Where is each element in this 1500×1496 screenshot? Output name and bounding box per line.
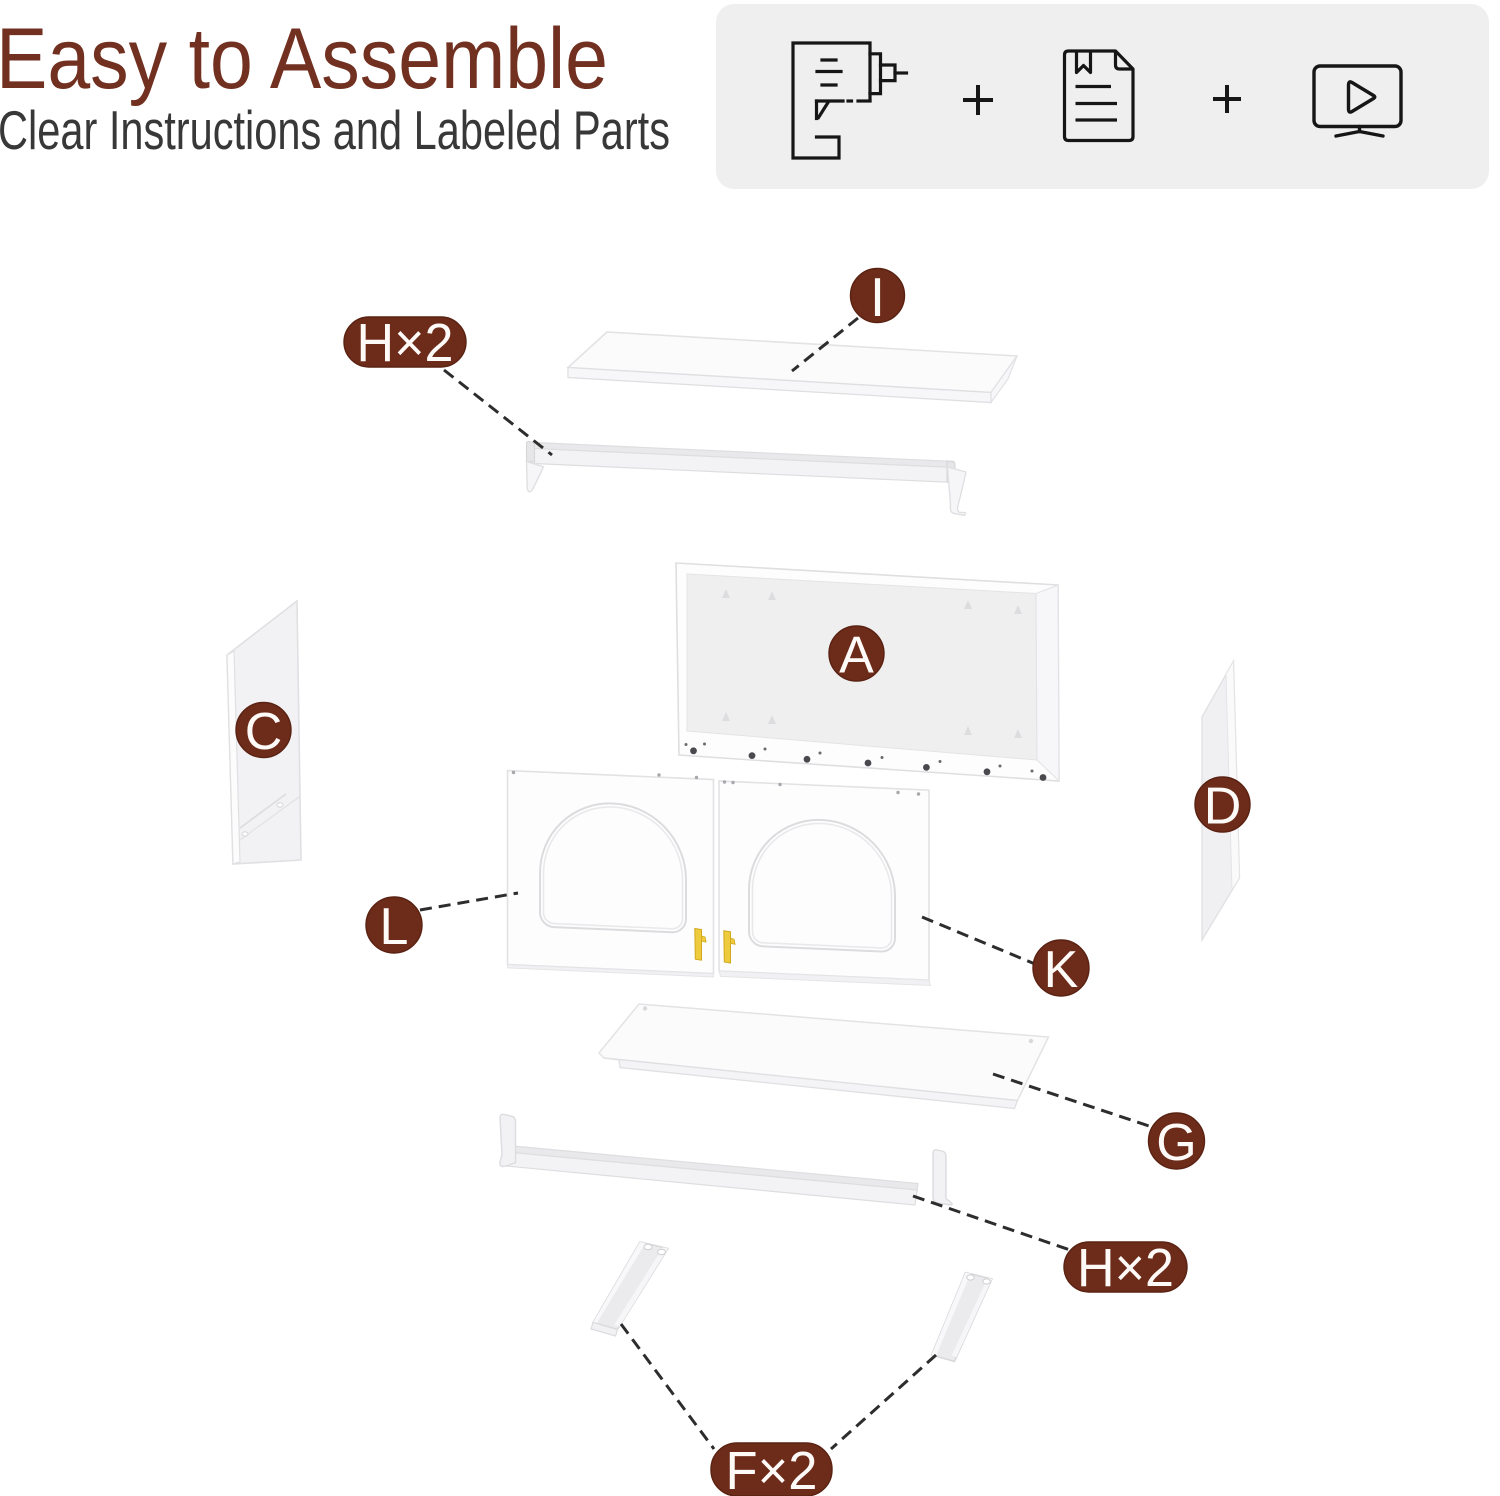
svg-text:K: K bbox=[1044, 941, 1079, 999]
svg-text:G: G bbox=[1156, 1114, 1196, 1172]
svg-text:L: L bbox=[380, 898, 409, 956]
svg-text:A: A bbox=[839, 627, 874, 685]
svg-text:Easy to Assemble: Easy to Assemble bbox=[0, 11, 608, 107]
svg-text:C: C bbox=[245, 703, 283, 761]
svg-text:H×2: H×2 bbox=[357, 313, 454, 373]
svg-text:I: I bbox=[870, 266, 885, 328]
svg-text:F×2: F×2 bbox=[726, 1441, 818, 1496]
svg-text:D: D bbox=[1204, 778, 1242, 836]
svg-text:Clear Instructions and Labeled: Clear Instructions and Labeled Parts bbox=[0, 99, 670, 161]
svg-text:H×2: H×2 bbox=[1077, 1238, 1174, 1298]
